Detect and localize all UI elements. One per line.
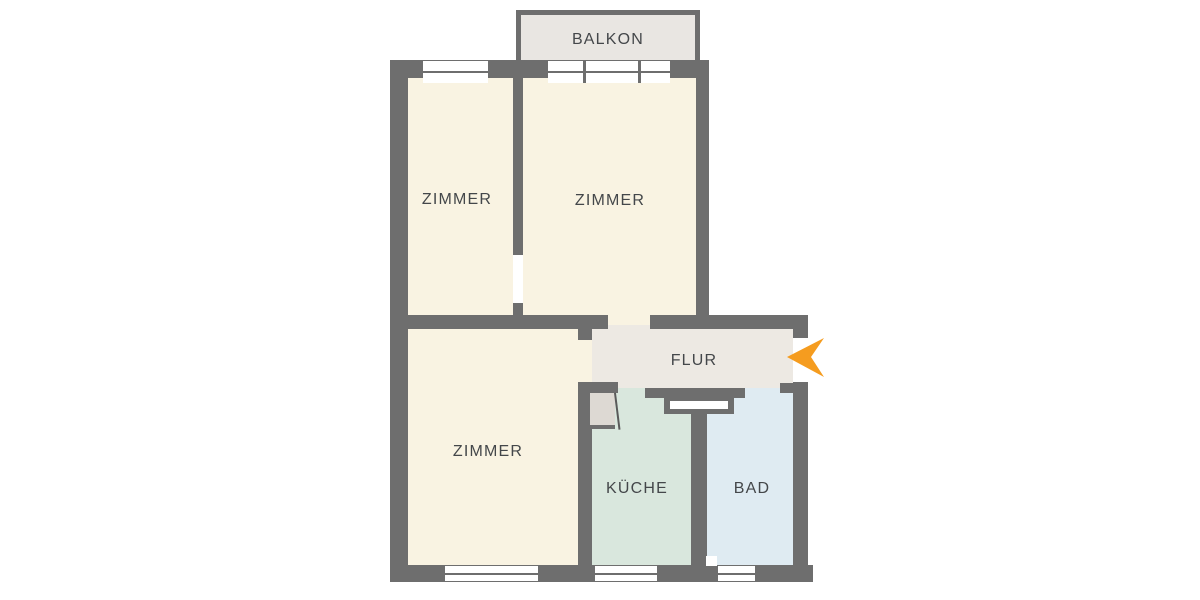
window-bottom-zimmer [445, 566, 538, 581]
window-midline [548, 71, 670, 73]
window-top-left [423, 61, 488, 83]
window-midline [718, 573, 755, 575]
window-bottom-bad [718, 566, 755, 581]
door-symbol-bad [664, 396, 734, 414]
window-bottom-kueche [595, 566, 657, 581]
label-zimmer-bottom: ZIMMER [453, 443, 523, 461]
label-flur: FLUR [671, 352, 718, 370]
wall-divider-upper-stub [513, 303, 523, 315]
wall-flur-bottom-right-stub [780, 383, 808, 393]
window-balcony-door [548, 61, 670, 83]
wall-divider-upper-rooms [513, 78, 523, 255]
wall-kueche-bad-divider [691, 414, 707, 565]
door-leaf-kueche [590, 393, 615, 429]
door-symbol-panel [670, 401, 728, 409]
label-zimmer-top-right: ZIMMER [575, 192, 645, 210]
wall-right-lower [793, 382, 808, 565]
wall-zimmer-door-jamb [578, 329, 592, 340]
room-bad [707, 388, 793, 565]
wall-horizontal-right [650, 315, 793, 329]
balcony-area: BALKON [516, 10, 700, 65]
wall-flur-bottom-left-stub [578, 382, 618, 393]
label-kueche: KÜCHE [606, 480, 668, 498]
window-midline [423, 71, 488, 73]
window-midline [595, 573, 657, 575]
wall-right-upper [696, 60, 709, 315]
entrance-arrow-icon [785, 335, 829, 381]
balcony-label: BALKON [572, 31, 644, 49]
window-divider [638, 61, 641, 83]
wall-notch-square [706, 556, 717, 566]
window-divider [583, 61, 586, 83]
label-zimmer-top-left: ZIMMER [422, 191, 492, 209]
label-bad: BAD [734, 480, 771, 498]
window-midline [445, 573, 538, 575]
wall-horizontal-left [390, 315, 608, 329]
floor-plan: BALKON ZI [0, 0, 1200, 600]
